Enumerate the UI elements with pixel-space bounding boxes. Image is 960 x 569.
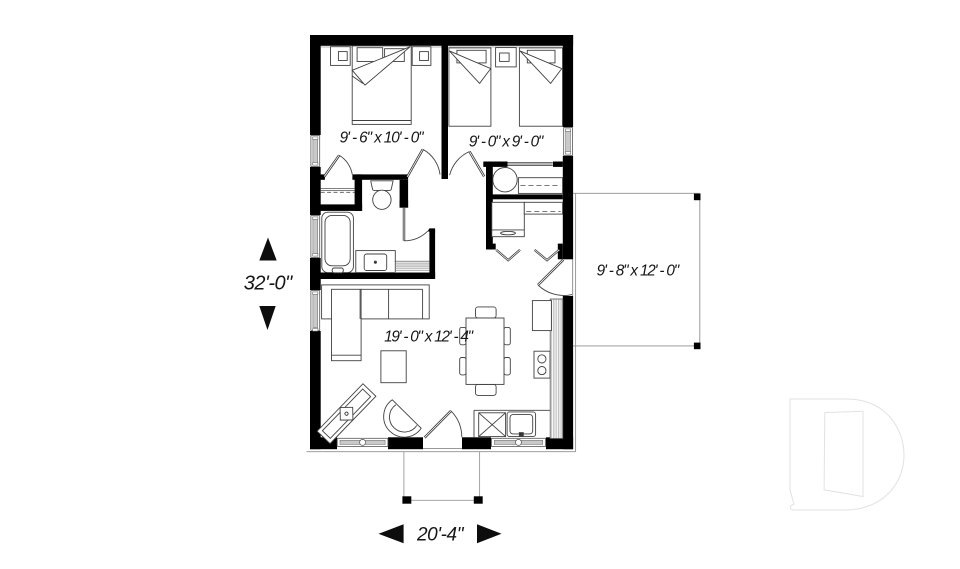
svg-text:9' - 6" x 10' - 0": 9' - 6" x 10' - 0": [340, 129, 425, 146]
svg-text:32'-0": 32'-0": [244, 273, 293, 295]
svg-text:9' - 8" x 12' - 0": 9' - 8" x 12' - 0": [597, 262, 680, 279]
svg-text:20'-4": 20'-4": [416, 524, 465, 545]
svg-text:9' - 0" x 9' - 0": 9' - 0" x 9' - 0": [469, 133, 544, 150]
svg-text:19' - 0" x 12' - 4": 19' - 0" x 12' - 4": [384, 328, 474, 345]
